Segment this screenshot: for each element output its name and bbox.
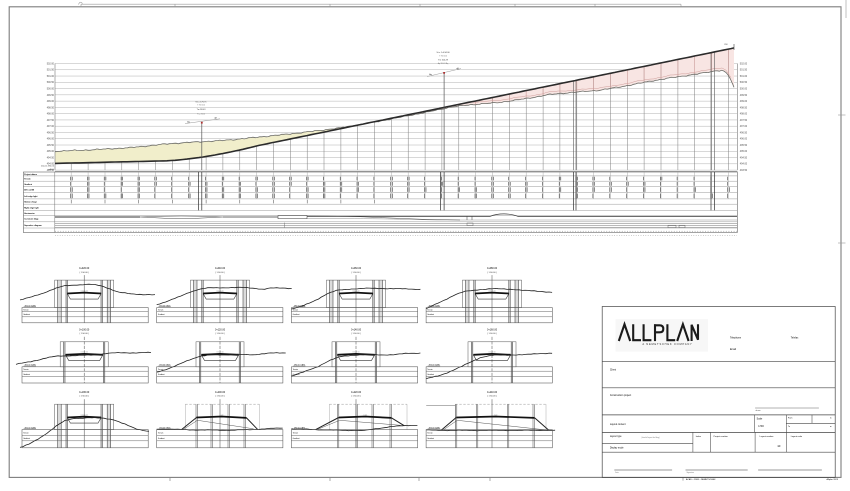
svg-text:0+100.00: 0+100.00: [79, 329, 90, 332]
svg-text:Superelev. diagram: Superelev. diagram: [24, 225, 42, 227]
svg-text:( 1:50.00 ): ( 1:50.00 ): [79, 395, 89, 397]
svg-text:Construction project: Construction project: [610, 394, 632, 397]
svg-text:499.50: 499.50: [740, 94, 748, 97]
svg-text:0+240.00: 0+240.00: [487, 391, 498, 394]
svg-text:497.50: 497.50: [740, 119, 748, 122]
svg-text:( 1:50.00 ): ( 1:50.00 ): [79, 272, 89, 274]
svg-text:501.00: 501.00: [740, 75, 748, 78]
svg-text:( 1:50.00 ): ( 1:50.00 ): [215, 272, 225, 274]
svg-text:0+140.00: 0+140.00: [351, 329, 362, 332]
svg-text:494.50: 494.50: [47, 157, 55, 160]
svg-text:1:50: 1:50: [758, 424, 764, 428]
svg-text:10: 10: [777, 444, 781, 448]
svg-text:497.00: 497.00: [740, 125, 748, 128]
svg-text:0+020.00: 0+020.00: [79, 267, 90, 270]
svg-text:0+060.00: 0+060.00: [351, 267, 362, 270]
svg-text:498.50: 498.50: [47, 106, 55, 109]
svg-text:494.50: 494.50: [740, 157, 748, 160]
svg-text:494.00: 494.00: [740, 163, 748, 166]
svg-text:From: From: [788, 417, 793, 419]
svg-text:( 1:50.00 ): ( 1:50.00 ): [351, 272, 361, 274]
svg-text:BW: BW: [724, 44, 727, 46]
svg-text:Ve = 175.71: Ve = 175.71: [195, 102, 207, 104]
svg-text:502.00: 502.00: [47, 62, 55, 65]
svg-text:500.00: 500.00: [740, 88, 748, 91]
svg-text:500.50: 500.50: [740, 81, 748, 84]
svg-text:Telephone: Telephone: [730, 336, 742, 339]
svg-text:( 1:50.00 ): ( 1:50.00 ): [351, 395, 361, 397]
svg-text:498.50: 498.50: [740, 106, 748, 109]
svg-text:501.50: 501.50: [47, 69, 55, 72]
svg-text:Email: Email: [730, 348, 736, 351]
svg-text:495.00: 495.00: [740, 150, 748, 153]
svg-text:( 1:50.00 ): ( 1:50.00 ): [215, 333, 225, 335]
svg-text:0+120.00: 0+120.00: [215, 329, 226, 332]
svg-text:0+220.00: 0+220.00: [351, 391, 362, 394]
svg-text:0+080.00: 0+080.00: [487, 267, 498, 270]
svg-text:0+180.00: 0+180.00: [79, 391, 90, 394]
svg-text:499.50: 499.50: [47, 94, 55, 97]
svg-text:0+200.00: 0+200.00: [215, 391, 226, 394]
svg-text:498.00: 498.00: [740, 113, 748, 116]
svg-text:drawn: drawn: [756, 410, 761, 412]
svg-text:501.50: 501.50: [740, 69, 748, 72]
svg-text:To: To: [788, 426, 790, 428]
svg-text:T: 90.000: T: 90.000: [197, 104, 205, 106]
svg-text:Terrain: Terrain: [24, 179, 31, 181]
svg-text:496.50: 496.50: [740, 131, 748, 134]
svg-text:( 1:50.00 ): ( 1:50.00 ): [487, 395, 497, 397]
svg-text:496.00: 496.00: [47, 138, 55, 141]
svg-text:Tm 104.29: Tm 104.29: [438, 59, 449, 61]
svg-text:Scale: Scale: [757, 418, 763, 420]
svg-text:495.00: 495.00: [47, 150, 55, 153]
svg-text:Layout content: Layout content: [610, 423, 626, 426]
svg-text:R = 2000: R = 2000: [197, 114, 205, 116]
svg-text:0+040.00: 0+040.00: [215, 267, 226, 270]
svg-text:Display mode: Display mode: [610, 448, 624, 450]
svg-text:Telefax: Telefax: [791, 336, 799, 339]
svg-text:493.50: 493.50: [740, 169, 748, 172]
svg-text:0+160.00: 0+160.00: [487, 329, 498, 332]
svg-text:496.00: 496.00: [740, 138, 748, 141]
svg-text:495.50: 495.50: [740, 144, 748, 147]
svg-text:498.00: 498.00: [47, 113, 55, 116]
svg-text:501.00: 501.00: [47, 75, 55, 78]
svg-text:( 1:50.00 ): ( 1:50.00 ): [215, 395, 225, 397]
svg-text:502.00: 502.00: [740, 62, 748, 65]
svg-text:497.00: 497.00: [47, 125, 55, 128]
svg-text:Tm 98.43: Tm 98.43: [197, 109, 207, 111]
svg-text:499.00: 499.00: [47, 100, 55, 103]
svg-text:500.00: 500.00: [47, 88, 55, 91]
svg-text:( 1:50.00 ): ( 1:50.00 ): [351, 333, 361, 335]
svg-text:497.50: 497.50: [47, 119, 55, 122]
svg-text:496.50: 496.50: [47, 131, 55, 134]
svg-text:T: 90.000: T: 90.000: [439, 56, 447, 58]
svg-text:( 1:50.00 ): ( 1:50.00 ): [79, 333, 89, 335]
svg-text:Client: Client: [610, 369, 616, 372]
svg-text:500.50: 500.50: [47, 81, 55, 84]
svg-text:( 1:50.00 ): ( 1:50.00 ): [487, 333, 497, 335]
svg-text:495.50: 495.50: [47, 144, 55, 147]
svg-text:499.00: 499.00: [740, 100, 748, 103]
svg-text:( 1:50.00 ): ( 1:50.00 ): [487, 272, 497, 274]
svg-text:494.00: 494.00: [47, 163, 55, 166]
